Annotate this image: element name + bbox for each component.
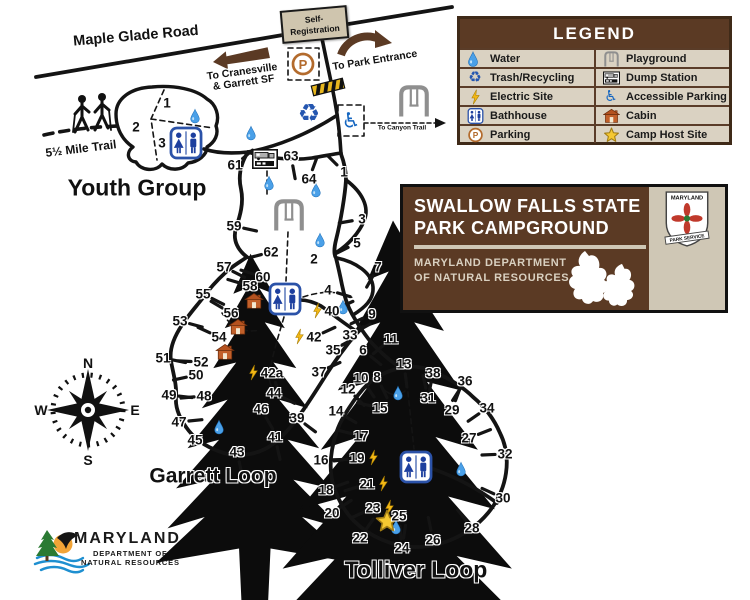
compass-w: W <box>34 402 48 418</box>
dnr-logo-sub1: DEPARTMENT OF <box>93 549 167 558</box>
site-spur <box>305 424 315 432</box>
compass-n: N <box>83 355 93 371</box>
star-icon <box>603 127 620 143</box>
gate-icon <box>311 78 344 95</box>
legend-row: ParkingCamp Host Site <box>460 124 729 143</box>
legend-label: Accessible Parking <box>626 91 727 103</box>
bathhouse-icon <box>270 284 300 314</box>
legend-row: WaterPlayground <box>460 48 729 67</box>
playground-icon <box>401 87 427 116</box>
site-spur <box>178 361 191 362</box>
park-sign-title: SWALLOW FALLS STATE PARK CAMPGROUND <box>414 195 649 239</box>
park-sign-brown-panel: SWALLOW FALLS STATE PARK CAMPGROUND MARY… <box>403 187 649 310</box>
legend-title: LEGEND <box>460 19 729 48</box>
site-spur <box>478 430 490 435</box>
site-spur <box>405 374 407 387</box>
legend-rows: WaterPlayground♻Trash/RecyclingDump Stat… <box>460 48 729 143</box>
legend: LEGEND WaterPlayground♻Trash/RecyclingDu… <box>457 16 732 145</box>
legend-label: Dump Station <box>626 72 698 84</box>
playground-icon <box>603 51 620 67</box>
park-sign-tan-panel: MARYLAND PARK SERVICE <box>649 187 725 310</box>
playground-icon <box>276 201 302 230</box>
legend-item: Water <box>460 50 594 67</box>
shield-title: MARYLAND <box>671 195 703 201</box>
site-spur <box>228 280 240 284</box>
parking-icon <box>467 127 484 143</box>
legend-item: Electric Site <box>460 88 594 105</box>
site-spur <box>455 388 459 400</box>
legend-row: ♻Trash/RecyclingDump Station <box>460 67 729 86</box>
water-icon <box>265 176 274 190</box>
legend-label: Parking <box>490 129 530 141</box>
accessible-parking-dashed-box <box>338 105 364 136</box>
legend-label: Trash/Recycling <box>490 72 574 84</box>
site-spur <box>339 221 352 223</box>
legend-item: Playground <box>594 50 729 67</box>
legend-item: ♿Accessible Parking <box>594 88 729 105</box>
site-spur <box>190 324 203 327</box>
parking-icon <box>293 54 313 74</box>
self-registration-line2: Registration <box>290 22 340 36</box>
legend-label: Bathhouse <box>490 110 547 122</box>
water-icon <box>247 126 256 140</box>
dumpstation-icon <box>603 70 620 86</box>
canyon-arrowhead <box>435 118 446 128</box>
site-spur <box>404 525 406 538</box>
self-registration-sign: Self- Registration <box>280 5 350 44</box>
bolt-icon <box>467 89 484 105</box>
site-spur <box>328 156 337 165</box>
electric-site-icon <box>296 329 304 344</box>
legend-item: Cabin <box>594 107 729 124</box>
youth-group-loop <box>116 87 218 170</box>
compass-s: S <box>83 452 92 468</box>
cabin-icon <box>603 108 620 124</box>
water-icon <box>312 183 321 197</box>
legend-item: Bathhouse <box>460 107 594 124</box>
bathhouse-icon <box>171 128 201 158</box>
oak-leaves-icon <box>567 248 645 308</box>
to-cranesville-arrow <box>212 46 271 71</box>
site-spur <box>468 414 479 421</box>
bathhouse-icon <box>401 452 431 482</box>
legend-label: Playground <box>626 53 687 65</box>
compass-e: E <box>130 402 139 418</box>
legend-item: Dump Station <box>594 69 729 86</box>
legend-row: BathhouseCabin <box>460 105 729 124</box>
legend-label: Electric Site <box>490 91 553 103</box>
site-spur <box>198 327 210 332</box>
legend-item: ♻Trash/Recycling <box>460 69 594 86</box>
legend-row: Electric Site♿Accessible Parking <box>460 86 729 105</box>
legend-item: Camp Host Site <box>594 126 729 143</box>
water-icon <box>316 233 325 247</box>
legend-label: Camp Host Site <box>626 129 707 141</box>
site-spur <box>338 293 350 297</box>
legend-label: Cabin <box>626 110 657 122</box>
dnr-logo-sub2: NATURAL RESOURCES <box>81 558 180 567</box>
legend-item: Parking <box>460 126 594 143</box>
site-spur <box>334 459 347 461</box>
compass-rose: N S W E <box>34 355 139 468</box>
site-spur <box>181 397 194 398</box>
site-spur <box>482 454 495 455</box>
dashed-playground-to-bathhouse <box>286 232 288 281</box>
bathhouse-icon <box>467 108 484 124</box>
wheelchair-icon: ♿ <box>604 89 617 104</box>
site-spur <box>323 327 335 332</box>
dnr-logo: MARYLAND DEPARTMENT OF NATURAL RESOURCES <box>30 518 200 580</box>
road-youth-access <box>204 116 336 153</box>
water-icon <box>191 109 200 123</box>
site-spur <box>189 420 202 421</box>
cabin-icon <box>216 344 233 359</box>
dump-station-icon <box>253 150 277 168</box>
site-spur <box>293 166 295 179</box>
legend-label: Water <box>490 53 520 65</box>
campground-map: P <box>0 0 750 600</box>
site-spur <box>244 228 257 231</box>
site-spur <box>400 526 401 539</box>
dnr-logo-name: MARYLAND <box>74 530 181 548</box>
recycle-icon: ♻ <box>468 70 481 85</box>
maryland-park-service-shield: MARYLAND PARK SERVICE <box>664 190 710 248</box>
droplet-icon <box>467 51 484 67</box>
water-icon <box>457 462 466 476</box>
park-name-sign: SWALLOW FALLS STATE PARK CAMPGROUND MARY… <box>400 184 728 313</box>
